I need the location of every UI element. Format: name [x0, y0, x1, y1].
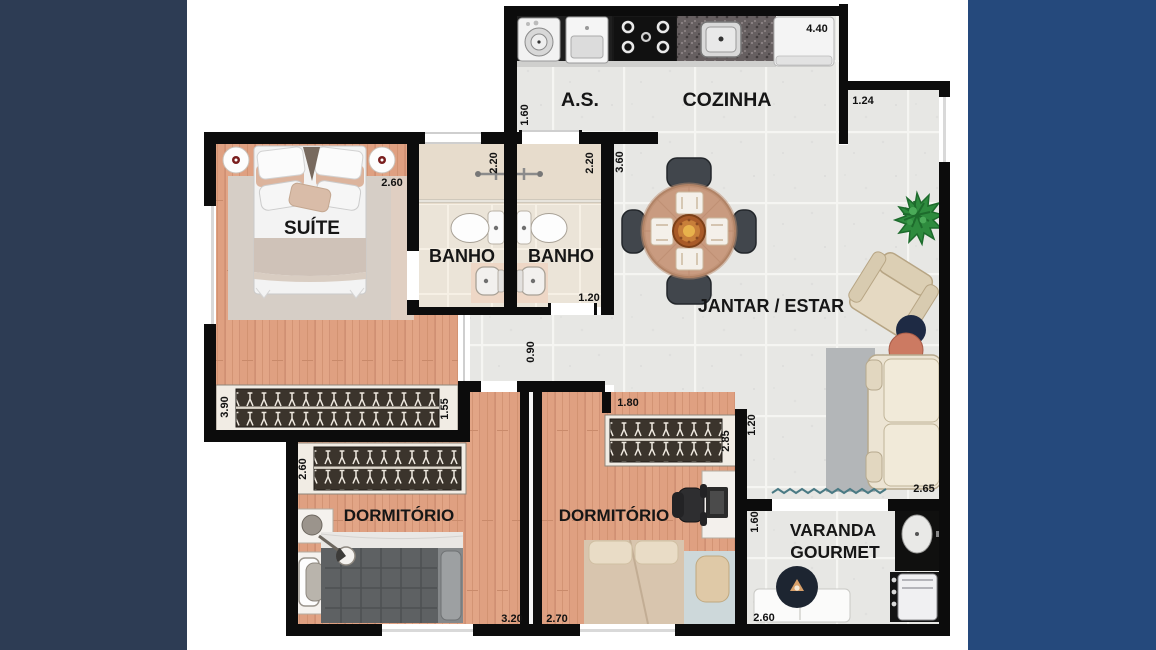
svg-text:JANTAR / ESTAR: JANTAR / ESTAR: [698, 296, 844, 316]
svg-text:1.80: 1.80: [617, 397, 638, 409]
svg-text:COZINHA: COZINHA: [683, 89, 772, 111]
svg-text:3.90: 3.90: [219, 396, 231, 417]
svg-text:2.85: 2.85: [720, 430, 732, 451]
svg-text:2.20: 2.20: [584, 152, 596, 173]
svg-text:2.60: 2.60: [297, 458, 309, 479]
svg-text:1.60: 1.60: [519, 104, 531, 125]
svg-text:1.60: 1.60: [749, 511, 761, 532]
svg-text:3.20: 3.20: [501, 613, 522, 625]
svg-text:BANHO: BANHO: [528, 246, 594, 266]
svg-text:VARANDA: VARANDA: [790, 520, 877, 540]
svg-text:2.60: 2.60: [381, 177, 402, 189]
svg-text:0.90: 0.90: [525, 341, 537, 362]
svg-text:2.65: 2.65: [913, 483, 934, 495]
svg-text:1.20: 1.20: [746, 414, 758, 435]
svg-text:BANHO: BANHO: [429, 246, 495, 266]
svg-text:2.60: 2.60: [753, 612, 774, 624]
svg-text:DORMITÓRIO: DORMITÓRIO: [559, 506, 670, 525]
svg-text:GOURMET: GOURMET: [790, 542, 880, 562]
svg-text:2.20: 2.20: [488, 152, 500, 173]
svg-text:1.55: 1.55: [439, 398, 451, 419]
svg-text:3.60: 3.60: [614, 151, 626, 172]
svg-text:1.20: 1.20: [578, 292, 599, 304]
svg-text:A.S.: A.S.: [561, 89, 599, 111]
svg-text:DORMITÓRIO: DORMITÓRIO: [344, 506, 455, 525]
svg-text:2.70: 2.70: [546, 613, 567, 625]
svg-text:4.40: 4.40: [806, 23, 827, 35]
svg-text:SUÍTE: SUÍTE: [284, 217, 340, 239]
svg-text:1.24: 1.24: [852, 95, 874, 107]
